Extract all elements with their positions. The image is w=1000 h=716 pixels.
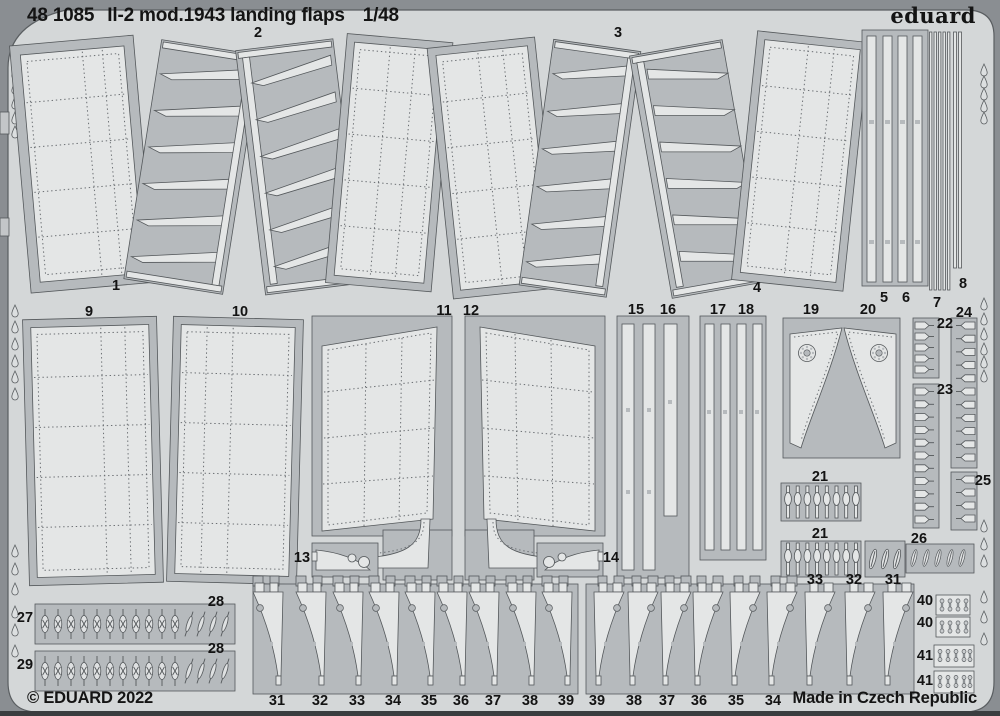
part-number-label: 35: [728, 693, 744, 709]
part-2-flap-assembly: [236, 34, 453, 295]
part-number-label: 21: [812, 469, 828, 485]
part-number-label: 22: [937, 316, 953, 332]
part-24-ladder: [951, 318, 977, 468]
part-number-label: 2: [254, 25, 262, 41]
rib-blade-row-right: [586, 576, 914, 694]
part-1-flap-assembly: [10, 35, 261, 294]
part-17-18-strips: [700, 316, 766, 560]
part-3-flap-assembly: [427, 37, 641, 299]
part-number-label: 36: [691, 693, 707, 709]
photo-etch-sheet-graphic: [0, 0, 1000, 716]
part-number-label: 15: [628, 302, 644, 318]
part-number-label: 8: [959, 276, 967, 292]
part-number-label: 27: [17, 610, 33, 626]
part-number-label: 39: [589, 693, 605, 709]
sheet-code: 48 1085: [27, 5, 94, 26]
part-number-label: 1: [112, 278, 120, 294]
part-number-label: 39: [558, 693, 574, 709]
part-number-label: 5: [880, 290, 888, 306]
part-number-label: 40: [917, 615, 933, 631]
part-number-label: 41: [917, 648, 933, 664]
part-number-label: 33: [807, 572, 823, 588]
part-number-label: 38: [522, 693, 538, 709]
part-number-label: 9: [85, 304, 93, 320]
part-number-label: 17: [710, 302, 726, 318]
copyright-text: © EDUARD 2022: [27, 689, 153, 708]
part-number-label: 4: [753, 280, 761, 296]
part-number-label: 18: [738, 302, 754, 318]
part-number-label: 21: [812, 526, 828, 542]
part-number-label: 11: [436, 303, 451, 319]
part-number-label: 25: [975, 473, 991, 489]
part-number-label: 34: [765, 693, 781, 709]
part-5-6-strips: [862, 30, 928, 286]
part-number-label: 14: [603, 550, 619, 566]
part-number-label: 28: [208, 641, 224, 657]
part-number-label: 33: [349, 693, 365, 709]
part-number-label: 32: [312, 693, 328, 709]
sheet-title: Il-2 mod.1943 landing flaps: [107, 5, 344, 26]
part-number-label: 37: [659, 693, 675, 709]
part-number-label: 31: [269, 693, 285, 709]
part-26-wavy-comb: [906, 544, 974, 573]
part-number-label: 31: [885, 572, 901, 588]
part-number-label: 34: [385, 693, 401, 709]
sheet-scale: 1/48: [363, 5, 399, 26]
part-number-label: 38: [626, 693, 642, 709]
part-number-label: 36: [453, 693, 469, 709]
part-14-plate: [537, 543, 603, 577]
part-9-panel: [23, 316, 164, 585]
part-21-comb-upper: [781, 483, 861, 521]
part-number-label: 7: [933, 295, 941, 311]
part-number-label: 26: [911, 531, 927, 547]
part-number-label: 16: [660, 302, 676, 318]
part-number-label: 32: [846, 572, 862, 588]
part-number-label: 37: [485, 693, 501, 709]
sheet-header: 48 1085Il-2 mod.1943 landing flaps1/48: [27, 5, 399, 27]
part-25-ladder: [951, 472, 977, 530]
brand-logo: eduard: [890, 3, 976, 28]
part-number-label: 19: [803, 302, 819, 318]
rib-blade-row-left: [253, 576, 578, 694]
part-number-label: 12: [463, 303, 479, 319]
part-10-panel: [167, 316, 304, 584]
part-number-label: 40: [917, 593, 933, 609]
part-22-ladder: [913, 318, 939, 378]
part-number-label: 28: [208, 594, 224, 610]
part-13-plate: [312, 543, 378, 577]
part-number-label: 23: [937, 382, 953, 398]
part-19-20-plate: [783, 318, 900, 458]
made-in-text: Made in Czech Republic: [793, 689, 977, 708]
part-number-label: 6: [902, 290, 910, 306]
part-number-label: 24: [956, 305, 972, 321]
part-number-label: 13: [294, 550, 310, 566]
part-number-label: 41: [917, 673, 933, 689]
part-number-label: 29: [17, 657, 33, 673]
part-number-label: 20: [860, 302, 876, 318]
part-number-label: 3: [614, 25, 622, 41]
part-number-label: 10: [232, 304, 248, 320]
part-23-ladder: [913, 384, 939, 528]
part-27-28-comb: [35, 604, 235, 644]
part-number-label: 35: [421, 693, 437, 709]
part-29-28-comb: [35, 651, 235, 691]
part-15-16-strips: [617, 316, 689, 578]
